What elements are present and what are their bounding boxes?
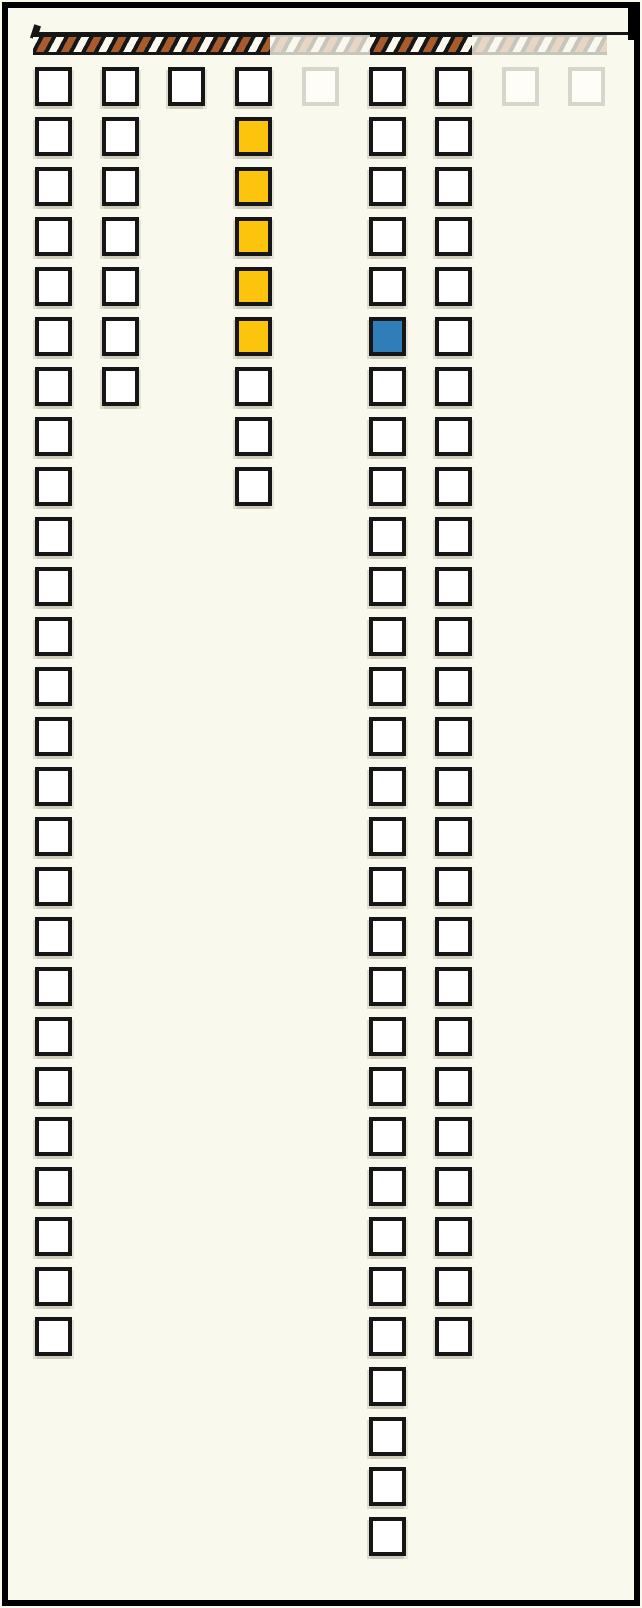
grid-square[interactable] [35, 767, 72, 806]
grid-square[interactable] [369, 1467, 406, 1506]
grid-square[interactable] [35, 567, 72, 606]
grid-square[interactable] [35, 1117, 72, 1156]
grid-square[interactable] [435, 667, 472, 706]
grid-square[interactable] [35, 967, 72, 1006]
grid-square[interactable] [435, 467, 472, 506]
grid-square[interactable] [435, 917, 472, 956]
grid-square[interactable] [168, 67, 205, 106]
grid-square[interactable] [435, 1067, 472, 1106]
grid-square[interactable] [235, 417, 272, 456]
grid-square[interactable] [369, 367, 406, 406]
grid-square[interactable] [369, 217, 406, 256]
grid-square[interactable] [435, 117, 472, 156]
grid-square[interactable] [435, 617, 472, 656]
ribbon-segment-active [33, 34, 270, 55]
grid-square[interactable] [35, 1267, 72, 1306]
grid-square[interactable] [369, 867, 406, 906]
grid-square[interactable] [35, 1167, 72, 1206]
grid-square[interactable] [102, 367, 139, 406]
grid-square[interactable] [35, 1317, 72, 1356]
grid-square[interactable] [369, 267, 406, 306]
grid-square[interactable] [369, 1417, 406, 1456]
grid-square[interactable] [435, 217, 472, 256]
grid-square[interactable] [435, 717, 472, 756]
grid-square[interactable] [369, 1367, 406, 1406]
grid-square[interactable] [369, 1267, 406, 1306]
grid-square[interactable] [435, 817, 472, 856]
grid-square[interactable] [35, 1217, 72, 1256]
grid-square[interactable] [35, 167, 72, 206]
ribbon-segment-active [370, 34, 472, 55]
grid-square-yellow[interactable] [235, 317, 272, 356]
grid-square[interactable] [369, 417, 406, 456]
grid-square[interactable] [102, 317, 139, 356]
frame-corner-notch [628, 2, 640, 40]
grid-square[interactable] [35, 617, 72, 656]
grid-square[interactable] [369, 67, 406, 106]
grid-square[interactable] [435, 67, 472, 106]
grid-square[interactable] [435, 167, 472, 206]
grid-square[interactable] [35, 817, 72, 856]
grid-square-yellow[interactable] [235, 167, 272, 206]
grid-square-faded [568, 67, 605, 106]
grid-square[interactable] [369, 667, 406, 706]
grid-square-blue[interactable] [369, 317, 406, 356]
grid-square[interactable] [35, 867, 72, 906]
grid-square[interactable] [102, 167, 139, 206]
grid-square[interactable] [35, 467, 72, 506]
grid-square-faded [302, 67, 339, 106]
grid-square[interactable] [35, 67, 72, 106]
grid-square[interactable] [369, 967, 406, 1006]
grid-square[interactable] [369, 1517, 406, 1556]
ribbon-segment-faded [472, 34, 607, 55]
grid-square[interactable] [369, 167, 406, 206]
grid-square[interactable] [369, 1017, 406, 1056]
grid-square-yellow[interactable] [235, 267, 272, 306]
grid-square[interactable] [102, 117, 139, 156]
grid-square[interactable] [435, 1117, 472, 1156]
grid-square[interactable] [369, 917, 406, 956]
grid-square[interactable] [369, 717, 406, 756]
grid-square[interactable] [369, 1117, 406, 1156]
grid-square[interactable] [35, 217, 72, 256]
sketch-canvas [0, 0, 642, 1608]
grid-square[interactable] [35, 917, 72, 956]
grid-square[interactable] [435, 1317, 472, 1356]
grid-square[interactable] [235, 67, 272, 106]
grid-square[interactable] [435, 1017, 472, 1056]
grid-square[interactable] [369, 1217, 406, 1256]
grid-square[interactable] [369, 817, 406, 856]
grid-square[interactable] [235, 367, 272, 406]
progress-ribbon [33, 34, 607, 55]
grid-square-faded [502, 67, 539, 106]
grid-square[interactable] [435, 967, 472, 1006]
grid-square[interactable] [435, 517, 472, 556]
grid-square[interactable] [435, 267, 472, 306]
grid-square-yellow[interactable] [235, 217, 272, 256]
grid-square[interactable] [435, 417, 472, 456]
grid-square[interactable] [369, 1167, 406, 1206]
grid-square[interactable] [235, 467, 272, 506]
grid-square[interactable] [369, 1067, 406, 1106]
grid-square[interactable] [369, 1317, 406, 1356]
grid-square-yellow[interactable] [235, 117, 272, 156]
grid-square[interactable] [435, 1217, 472, 1256]
grid-square[interactable] [435, 1167, 472, 1206]
grid-square[interactable] [102, 267, 139, 306]
grid-square[interactable] [35, 267, 72, 306]
grid-square[interactable] [435, 367, 472, 406]
grid-square[interactable] [35, 317, 72, 356]
grid-square[interactable] [35, 1067, 72, 1106]
grid-square[interactable] [35, 1017, 72, 1056]
grid-square[interactable] [102, 67, 139, 106]
grid-square[interactable] [369, 567, 406, 606]
grid-square[interactable] [369, 517, 406, 556]
grid-square[interactable] [102, 217, 139, 256]
grid-square[interactable] [35, 417, 72, 456]
grid-square[interactable] [35, 667, 72, 706]
grid-square[interactable] [35, 517, 72, 556]
grid-square[interactable] [435, 867, 472, 906]
grid-square[interactable] [369, 617, 406, 656]
grid-square[interactable] [369, 117, 406, 156]
grid-square[interactable] [35, 717, 72, 756]
grid-square[interactable] [35, 367, 72, 406]
grid-square[interactable] [435, 567, 472, 606]
grid-square[interactable] [35, 117, 72, 156]
grid-square[interactable] [369, 767, 406, 806]
ribbon-segment-faded [270, 34, 370, 55]
grid-square[interactable] [369, 467, 406, 506]
grid-square[interactable] [435, 1267, 472, 1306]
grid-square[interactable] [435, 317, 472, 356]
grid-square[interactable] [435, 767, 472, 806]
outer-frame [2, 2, 640, 1606]
